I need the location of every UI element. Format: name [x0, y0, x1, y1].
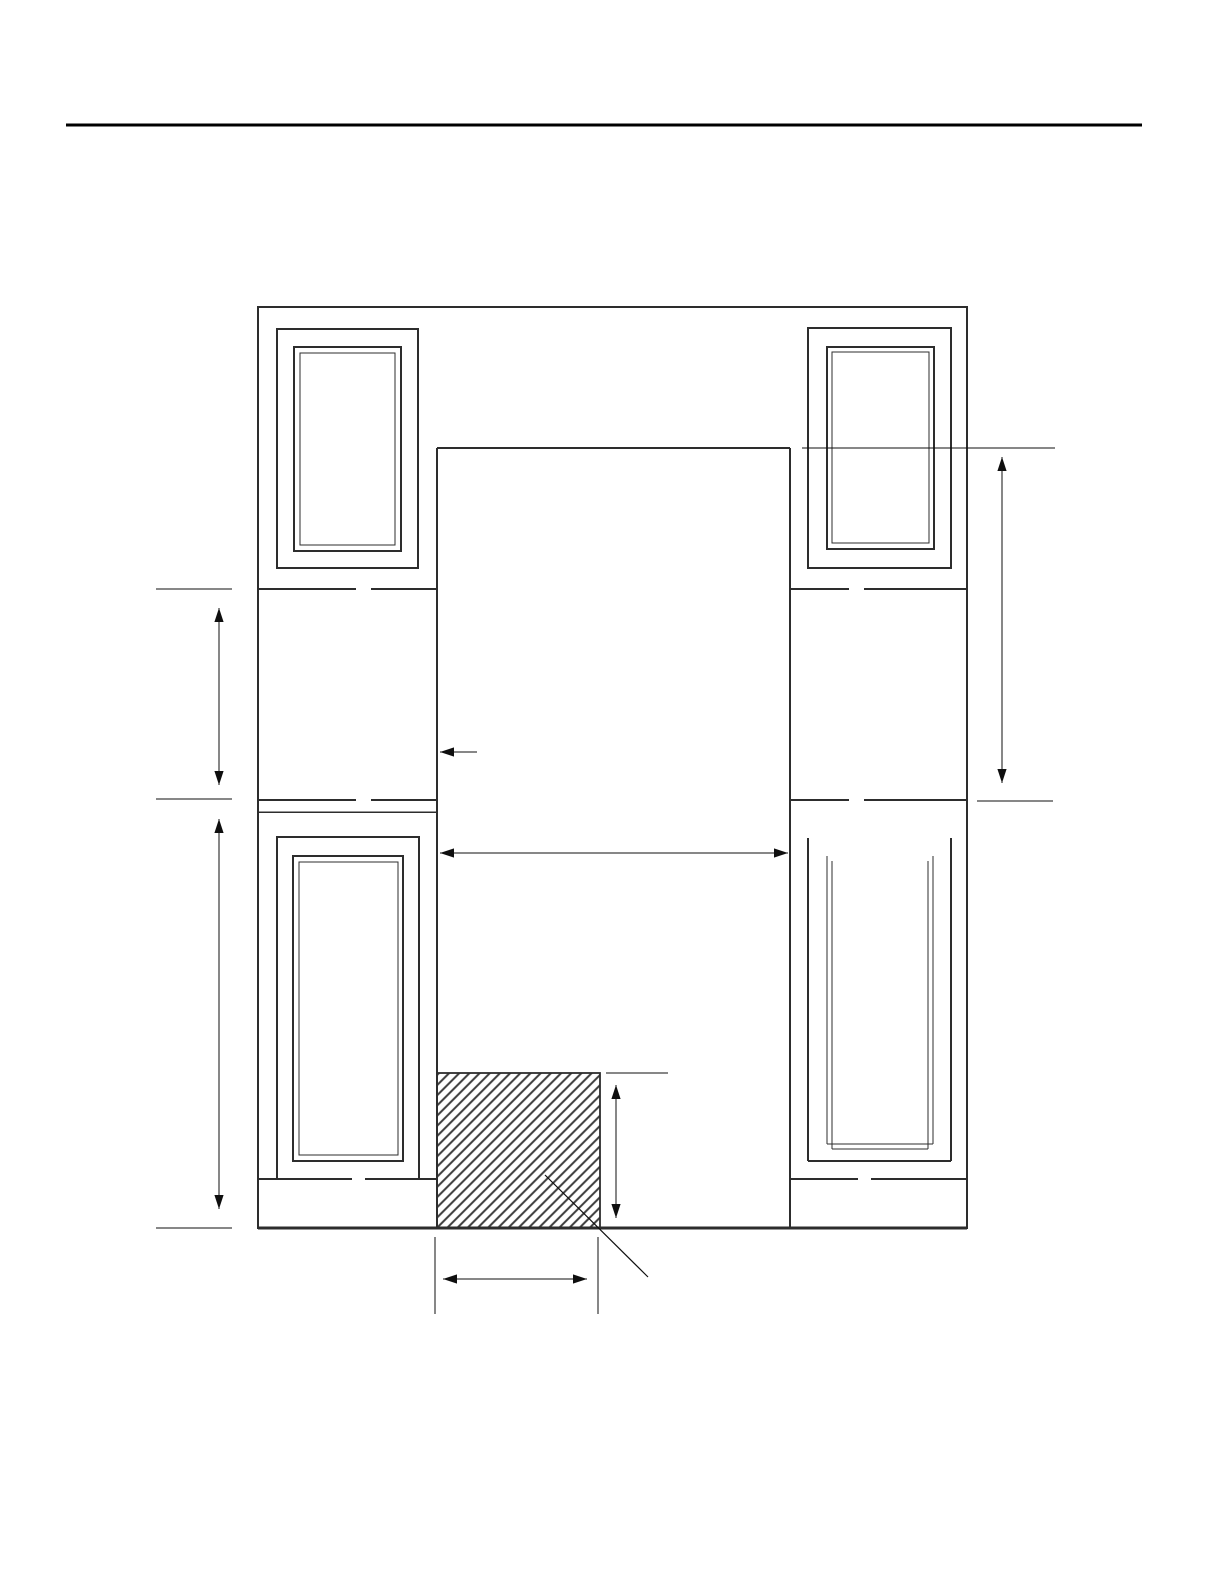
line-gap-notch [849, 797, 864, 803]
line-gap-notch [849, 586, 864, 592]
document-page [0, 0, 1224, 1584]
diagram-canvas [0, 0, 1224, 1584]
line-gap-notch [356, 797, 371, 803]
line-gap-notch [858, 1176, 871, 1181]
page-background [0, 0, 1224, 1584]
line-gap-notch [352, 1176, 365, 1181]
line-gap-notch [356, 586, 371, 592]
